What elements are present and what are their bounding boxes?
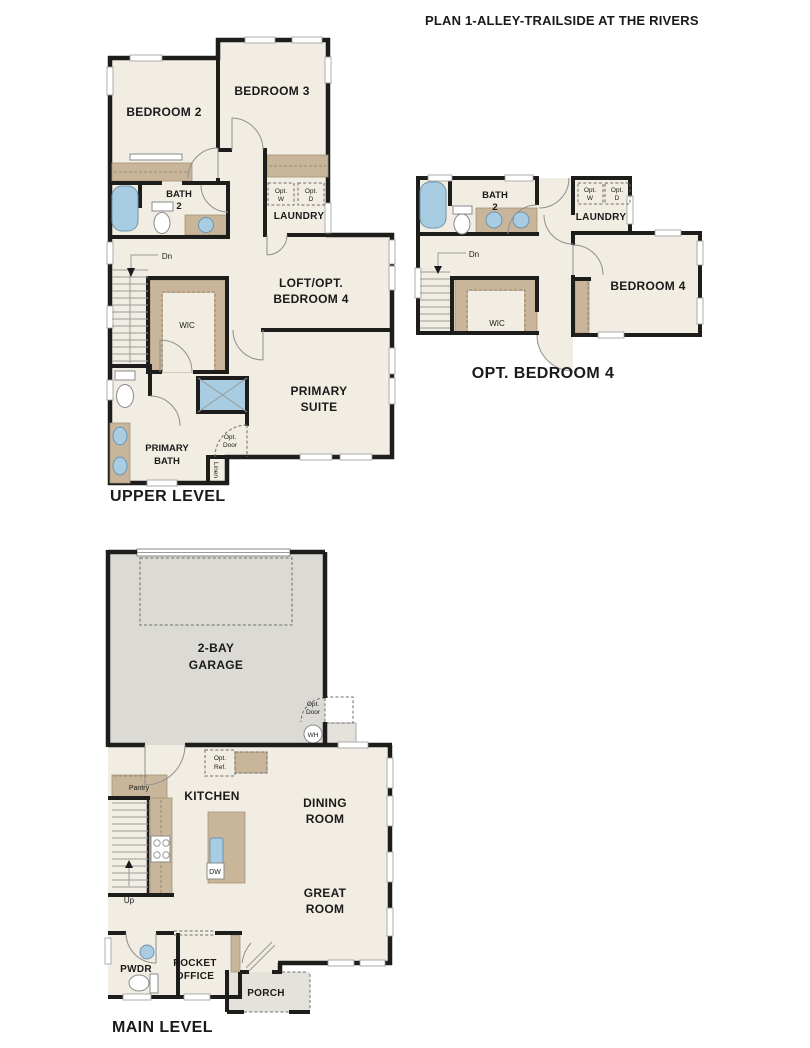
label-garage: 2-BAY bbox=[198, 641, 234, 655]
label-bath2: BATH bbox=[166, 189, 192, 200]
label-primary-bath: PRIMARY bbox=[145, 443, 189, 454]
svg-text:2: 2 bbox=[176, 201, 181, 212]
label-dining: DINING bbox=[303, 796, 347, 810]
bedroom4-closet bbox=[575, 280, 589, 333]
label-wic: WIC bbox=[179, 321, 195, 330]
label-wic: WIC bbox=[489, 319, 505, 328]
pwdr-sink-icon bbox=[140, 945, 154, 959]
range-icon bbox=[151, 836, 170, 862]
sink-icon bbox=[486, 212, 502, 228]
svg-text:BEDROOM 4: BEDROOM 4 bbox=[273, 292, 348, 306]
main-level-caption: MAIN LEVEL bbox=[112, 1019, 213, 1036]
label-pocket-office: POCKET bbox=[173, 958, 216, 969]
svg-text:W: W bbox=[278, 196, 285, 203]
svg-text:GARAGE: GARAGE bbox=[189, 658, 243, 672]
svg-text:W: W bbox=[587, 195, 594, 202]
vanity-sink-icon bbox=[113, 457, 127, 475]
plan-title: PLAN 1-ALLEY-TRAILSIDE AT THE RIVERS bbox=[425, 13, 699, 28]
island-sink-icon bbox=[210, 838, 223, 863]
svg-text:D: D bbox=[615, 195, 620, 202]
pwdr-toilet-icon bbox=[129, 974, 158, 993]
label-primary-suite: PRIMARY bbox=[291, 384, 348, 398]
upper-level-caption: UPPER LEVEL bbox=[110, 488, 226, 505]
label-loft: LOFT/OPT. bbox=[279, 276, 343, 290]
label-bedroom3: BEDROOM 3 bbox=[234, 84, 309, 98]
svg-text:ROOM: ROOM bbox=[306, 902, 345, 916]
label-great: GREAT bbox=[304, 886, 347, 900]
label-porch: PORCH bbox=[247, 988, 285, 999]
label-bedroom4: BEDROOM 4 bbox=[610, 279, 685, 293]
svg-text:SUITE: SUITE bbox=[301, 400, 338, 414]
label-opt-door: Opt. bbox=[307, 701, 319, 708]
sink-icon bbox=[513, 212, 529, 228]
svg-text:Opt.: Opt. bbox=[584, 187, 596, 194]
vanity-sink-icon bbox=[113, 427, 127, 445]
label-dn: Dn bbox=[469, 250, 479, 259]
svg-text:D: D bbox=[309, 196, 314, 203]
svg-text:Opt.: Opt. bbox=[611, 187, 623, 194]
wc-toilet-icon bbox=[115, 371, 135, 408]
floorplan-page: PLAN 1-ALLEY-TRAILSIDE AT THE RIVERS bbox=[0, 0, 810, 1048]
opt-door-landing bbox=[325, 697, 353, 723]
label-pwdr: PWDR bbox=[120, 964, 152, 975]
label-bath2: BATH bbox=[482, 190, 508, 201]
label-dn: Dn bbox=[162, 252, 172, 261]
label-up: Up bbox=[124, 896, 135, 905]
svg-text:2: 2 bbox=[492, 202, 497, 213]
svg-text:Opt.: Opt. bbox=[275, 188, 287, 195]
svg-text:ROOM: ROOM bbox=[306, 812, 345, 826]
tub-icon bbox=[420, 182, 446, 228]
label-kitchen: KITCHEN bbox=[184, 789, 239, 803]
label-opt-door: Opt. bbox=[224, 434, 236, 441]
label-opt-ref: Opt. bbox=[214, 755, 226, 762]
floorplan-canvas: PLAN 1-ALLEY-TRAILSIDE AT THE RIVERS bbox=[0, 0, 810, 1048]
tub-icon bbox=[112, 186, 138, 231]
label-laundry: LAUNDRY bbox=[576, 212, 627, 223]
label-linen: Linen bbox=[212, 462, 219, 478]
entry-wall bbox=[231, 935, 240, 972]
sink-icon bbox=[199, 218, 214, 233]
svg-text:Door: Door bbox=[223, 442, 238, 449]
label-laundry: LAUNDRY bbox=[274, 211, 325, 222]
label-wh: WH bbox=[308, 732, 319, 739]
svg-text:OFFICE: OFFICE bbox=[176, 971, 214, 982]
dresser bbox=[130, 154, 182, 160]
label-dw: DW bbox=[209, 869, 221, 876]
main-level-plan: 2-BAY GARAGE Opt. Door WH Opt. Ref. Pant… bbox=[105, 549, 393, 1036]
svg-text:Door: Door bbox=[306, 709, 321, 716]
svg-text:Ref.: Ref. bbox=[214, 764, 226, 771]
upper-level-plan: BEDROOM 2 BEDROOM 3 BATH 2 LAUNDRY Opt. … bbox=[107, 37, 395, 505]
svg-text:BATH: BATH bbox=[154, 456, 180, 467]
opt-bedroom4-caption: OPT. BEDROOM 4 bbox=[472, 365, 615, 382]
svg-text:Opt.: Opt. bbox=[305, 188, 317, 195]
ref-counter bbox=[235, 752, 267, 773]
opt-bedroom4-plan: BATH 2 Opt. W Opt. D LAUNDRY Dn WIC BEDR… bbox=[415, 175, 703, 382]
label-bedroom2: BEDROOM 2 bbox=[126, 105, 201, 119]
label-pantry: Pantry bbox=[129, 785, 150, 792]
